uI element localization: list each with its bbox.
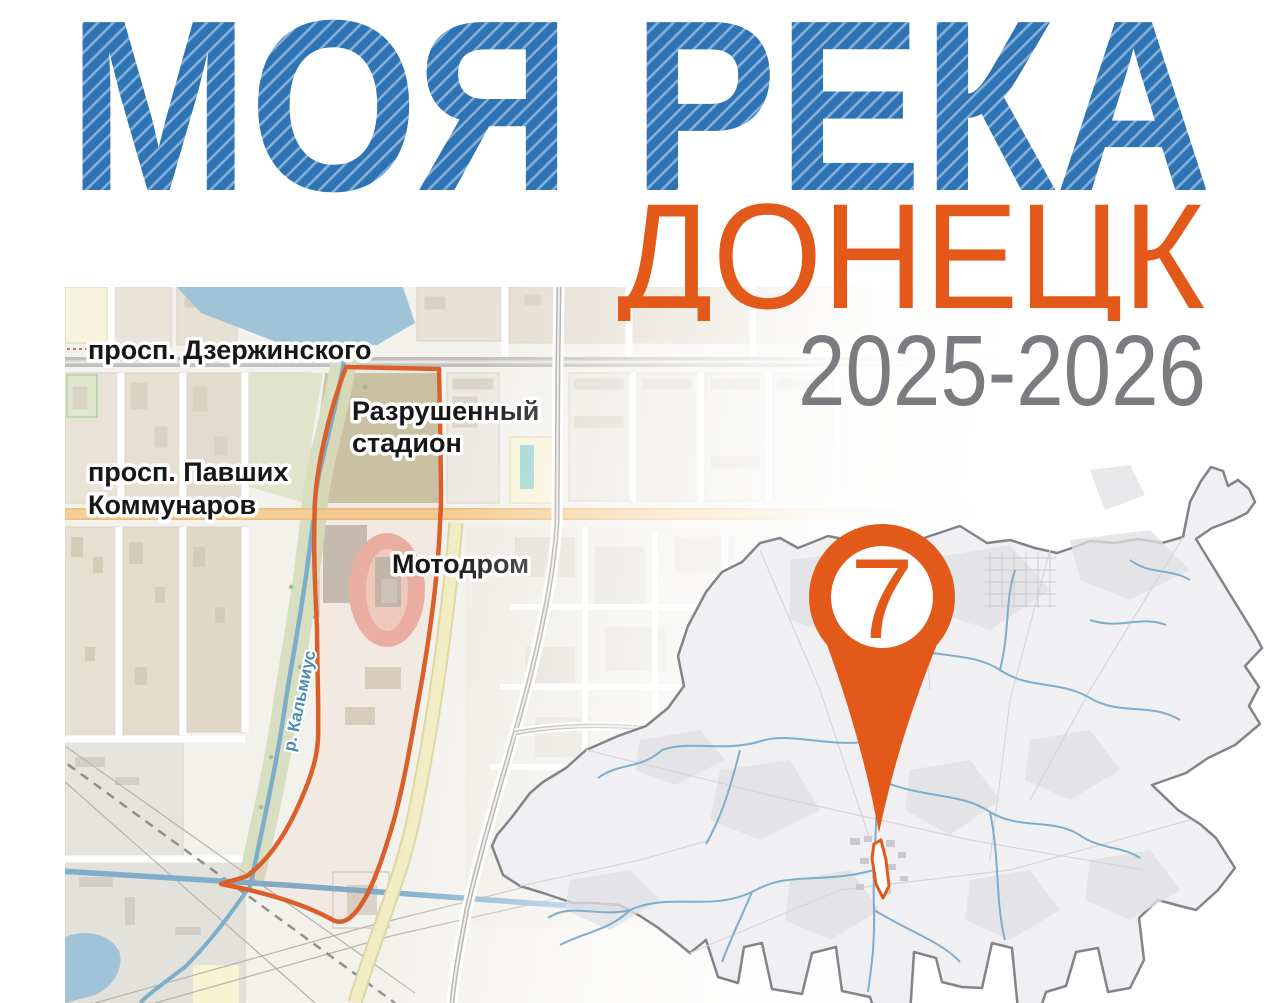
label-avenue-dzerzhinskogo: просп. Дзержинского xyxy=(88,335,372,365)
label-stadium-line2: стадион xyxy=(352,428,462,458)
pin-number: 7 xyxy=(850,536,913,663)
label-stadium-line1: Разрушенный xyxy=(352,396,539,426)
pale-yellow-area-bottom xyxy=(193,965,239,1003)
city-overview-map: 7 xyxy=(490,440,1280,1003)
label-avenue-pavshikh-line1: просп. Павших xyxy=(88,457,288,487)
headline: МОЯ РЕКА xyxy=(66,6,1216,201)
poster-canvas: просп. Дзержинского Разрушенный стадион … xyxy=(0,0,1280,1003)
page-subtitle: ДОНЕЦК xyxy=(617,196,1205,321)
page-title: МОЯ РЕКА xyxy=(68,6,1212,201)
period-label: 2025-2026 xyxy=(798,328,1206,412)
label-avenue-pavshikh-line2: Коммунаров xyxy=(88,490,256,520)
subtitle: ДОНЕЦК xyxy=(610,196,1210,321)
period: 2025-2026 xyxy=(790,328,1210,412)
